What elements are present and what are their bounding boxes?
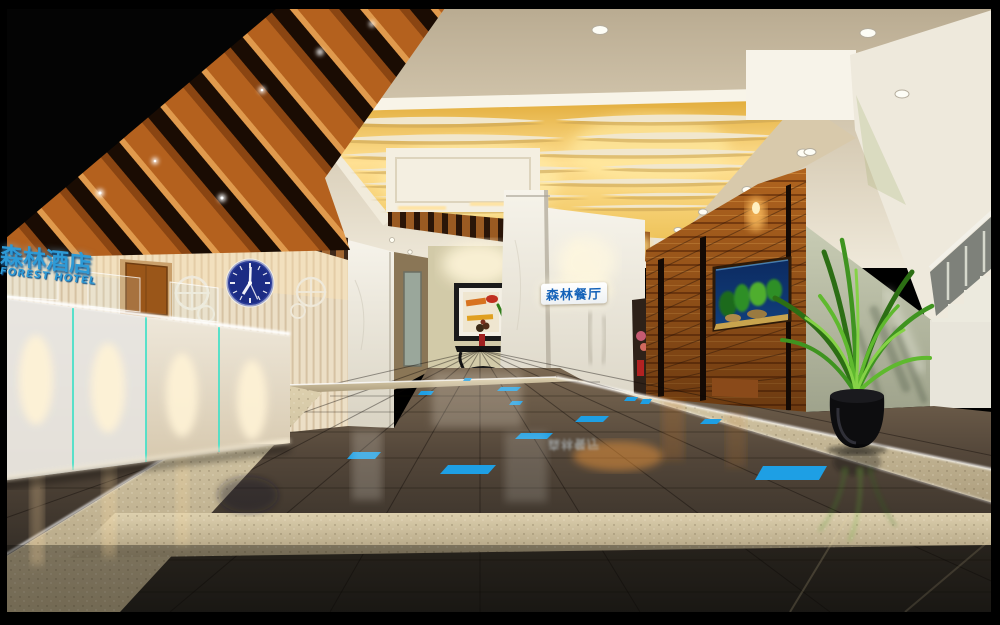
wall-clock-icon [226, 259, 275, 308]
wall-slot [700, 236, 706, 401]
lobby-render-canvas [0, 0, 1000, 625]
wood-sideboard [712, 378, 758, 398]
clock-minute-hand [250, 267, 251, 283]
fire-extinguisher [637, 360, 644, 376]
ceiling-bulkhead [746, 50, 856, 120]
niche-flowers [632, 298, 648, 400]
wall-shadow-decal [588, 312, 592, 364]
marble-pilaster [348, 240, 394, 430]
hotel-lobby-render: 森林酒店 FOREST HOTEL 森林餐厅 森林餐厅 [0, 0, 1000, 625]
aquarium [714, 258, 790, 330]
corridor-glass-door [404, 272, 421, 366]
wall-slot [658, 258, 664, 397]
